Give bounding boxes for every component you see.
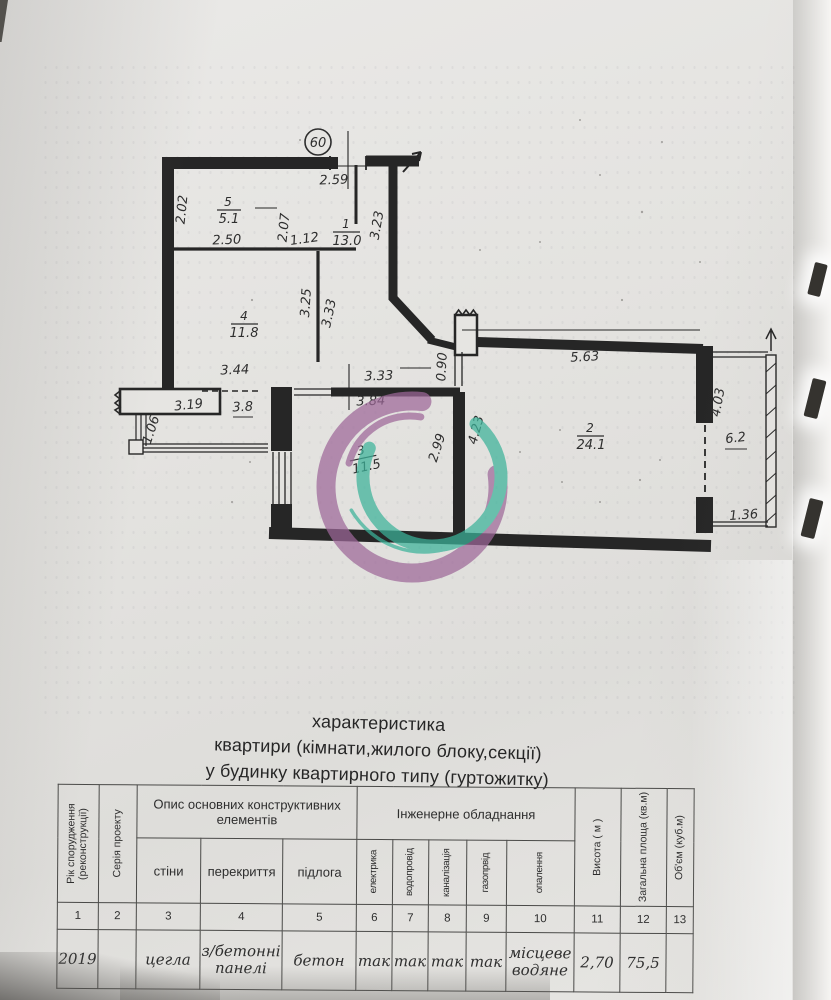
dim-2-59: 2.59: [319, 173, 348, 189]
apartment-number: 60: [310, 136, 327, 151]
wall-hall-right: [393, 166, 432, 340]
floor-plan: 60 2.59 2.02 2.50 2.07 1.12 3.23 3.25 3.…: [0, 0, 831, 690]
room-label-4: 4 11.8: [230, 309, 259, 341]
value-volume: [666, 934, 693, 993]
svg-text:1: 1: [342, 217, 350, 231]
col-header-sewerage: каналізація: [428, 840, 466, 905]
col-header-total-area: Загальна площа (кв.м): [620, 788, 667, 906]
group-header-engineering: Інженерне обладнання: [357, 786, 575, 841]
document-title: характеристика квартири (кімнати,жилого …: [117, 703, 639, 795]
col-header-electricity: електрика: [356, 839, 392, 904]
dim-2-02: 2.02: [174, 194, 192, 224]
dim-1-06: 1.06: [140, 414, 163, 446]
col-header-volume: Об'єм (куб.м): [666, 789, 694, 907]
dim-3-33-h: 3.33: [364, 369, 393, 385]
value-total-area: 75,5: [620, 933, 666, 992]
room-label-2: 2 24.1: [577, 421, 606, 453]
svg-text:5.1: 5.1: [219, 212, 240, 227]
dim-3-33-v: 3.33: [319, 298, 340, 329]
col-header-series: Серія проекту: [98, 785, 137, 903]
col-header-walls: стіни: [136, 838, 200, 903]
dim-3-44: 3.44: [220, 363, 249, 379]
balcony-left-area: 3.8: [232, 399, 253, 415]
col-header-heating: опалення: [506, 840, 574, 905]
dim-1-36: 1.36: [729, 507, 759, 524]
value-height: 2,70: [574, 933, 620, 992]
watermark-logo: [307, 351, 541, 585]
dim-3-23: 3.23: [368, 210, 388, 241]
dim-0-90: 0.90: [434, 352, 450, 382]
walls: [115, 131, 776, 546]
svg-text:2: 2: [586, 421, 594, 435]
wall-top-left: [168, 163, 338, 391]
window-room3: [273, 452, 291, 504]
wall-pier: [455, 315, 477, 355]
col-header-ceiling: перекриття: [200, 838, 282, 904]
col-header-height: Висота ( м ): [574, 788, 621, 906]
svg-text:4: 4: [240, 309, 248, 323]
dim-3-19: 3.19: [173, 397, 203, 415]
col-header-year: Рік спорудження (реконструкції): [57, 784, 99, 902]
scanned-page: 60 2.59 2.02 2.50 2.07 1.12 3.23 3.25 3.…: [0, 0, 831, 1000]
balcony-right-area: 6.2: [725, 430, 747, 447]
dim-2-50: 2.50: [212, 233, 241, 249]
dim-5-63: 5.63: [570, 349, 600, 365]
svg-text:5: 5: [224, 195, 232, 209]
svg-text:11.8: 11.8: [230, 326, 259, 341]
svg-text:13.0: 13.0: [333, 234, 362, 249]
col-header-floor: підлога: [282, 839, 356, 905]
dim-2-99: 2.99: [426, 432, 449, 464]
room-label-5: 5 5.1: [217, 195, 241, 227]
railing-right-balcony: [766, 355, 776, 527]
shadow-bottom-edge: [120, 966, 550, 1000]
north-tick-arrow: [766, 329, 776, 351]
col-header-water: водопровід: [392, 840, 428, 905]
svg-text:24.1: 24.1: [577, 438, 606, 453]
dim-1-12: 1.12: [289, 230, 320, 249]
wall-room2-top: [477, 342, 703, 349]
dim-3-25: 3.25: [298, 288, 315, 318]
apartment-number-circle: 60: [305, 129, 331, 155]
wall-protrusion: [120, 389, 220, 414]
group-header-construction: Опис основних конструктивних елементів: [137, 785, 357, 840]
col-header-gas: газопрвід: [466, 840, 506, 905]
